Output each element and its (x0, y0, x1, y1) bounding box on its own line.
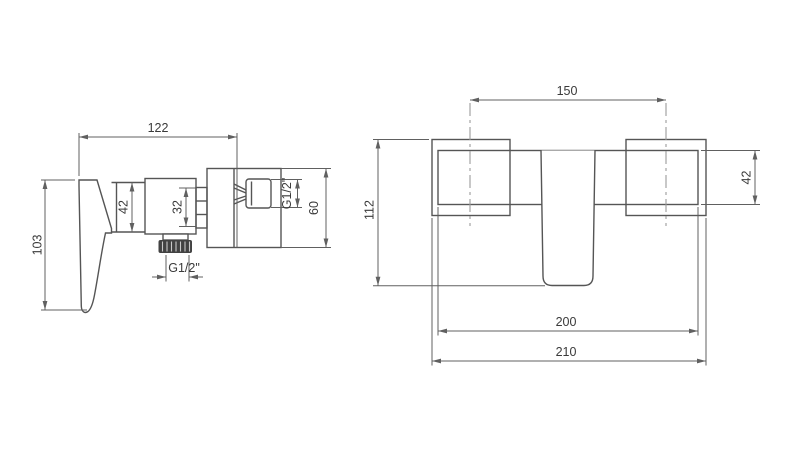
dim-height-103-label: 103 (31, 235, 45, 256)
dim-body-42-label: 42 (740, 171, 754, 185)
dim-height-112: 112 (363, 140, 546, 286)
eccentric-union (234, 179, 271, 208)
side-view: 122 103 42 32 (31, 121, 332, 312)
dim-body-42: 42 (701, 151, 760, 205)
dim-hub-42: 42 (117, 183, 135, 233)
technical-drawing-canvas: 122 103 42 32 (0, 0, 800, 475)
dim-spacing-150-label: 150 (557, 84, 578, 98)
dim-outlet-thread-label: G1/2" (168, 261, 200, 275)
technical-drawing-page: 122 103 42 32 (0, 0, 800, 475)
dim-inlet-thread-label: G1/2" (280, 178, 294, 210)
dim-plate-60-label: 60 (307, 201, 321, 215)
dim-body-width-200-label: 200 (556, 315, 577, 329)
dim-width-122-label: 122 (148, 121, 169, 135)
dim-spacing-150: 150 (470, 84, 666, 102)
dim-height-112-label: 112 (363, 200, 377, 220)
handle-front-outline (541, 151, 595, 286)
dim-cartridge-32-label: 32 (171, 200, 185, 214)
dim-inlet-thread: G1/2" (271, 178, 302, 210)
body-plate-steps (196, 188, 207, 229)
outlet-thread (159, 234, 193, 253)
dim-overall-width-210-label: 210 (556, 345, 577, 359)
front-view: 150 112 42 200 (363, 84, 761, 366)
dim-height-103: 103 (31, 180, 88, 310)
handle-lever-outline (79, 180, 112, 312)
dim-hub-42-label: 42 (117, 200, 131, 214)
dim-outlet-thread: G1/2" (152, 255, 203, 282)
